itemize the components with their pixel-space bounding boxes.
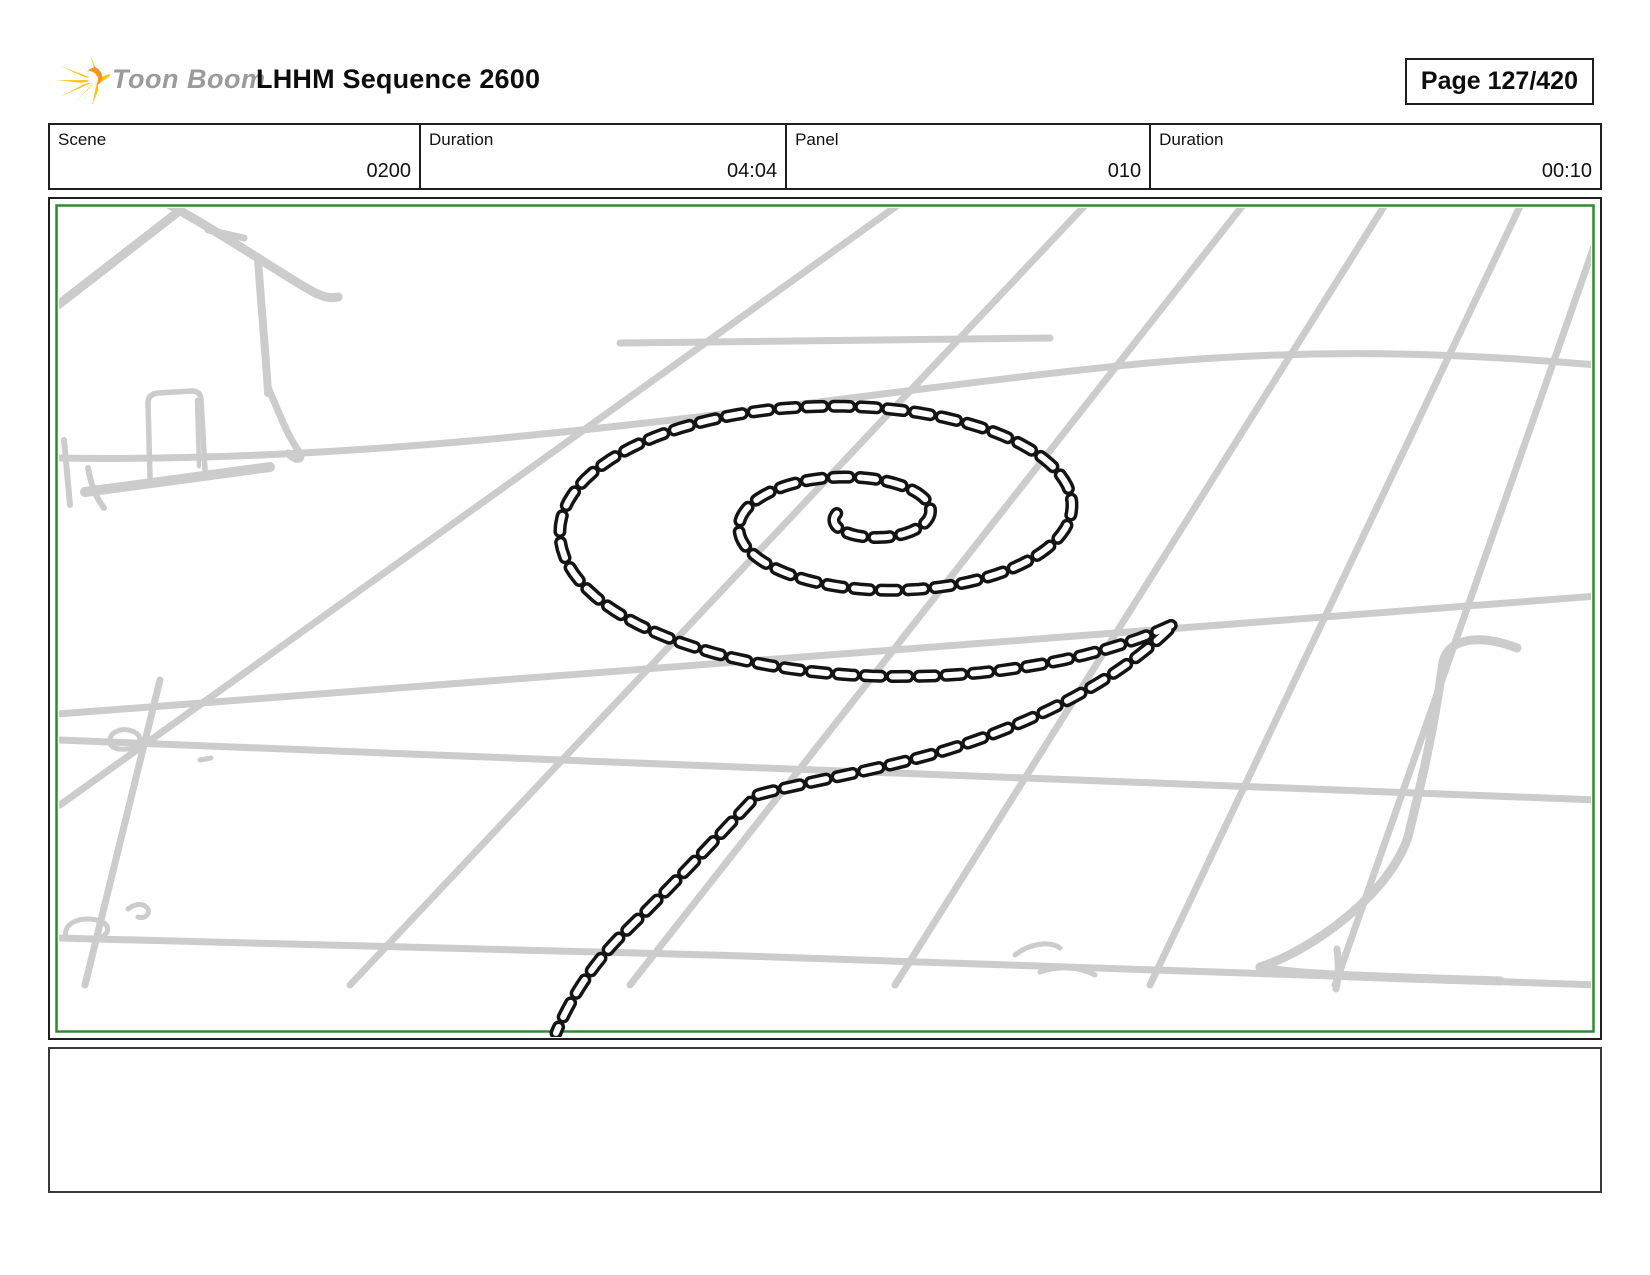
field-value: 04:04 [727,160,777,183]
panel-duration-cell: Duration 00:10 [1151,125,1600,188]
storyboard-drawing-panel [48,197,1602,1040]
scene-cell: Scene 0200 [50,125,421,188]
caption-box [48,1047,1602,1193]
field-label: Duration [1159,130,1223,150]
rope-stroke-layer [556,406,1174,1033]
pole-sketch [1260,640,1517,989]
page-indicator-label: Page 127/420 [1421,67,1578,96]
floor-grid-lines [58,200,1598,985]
toon-boom-logo-icon [56,52,110,110]
sequence-title: LHHM Sequence 2600 [256,64,540,95]
background-sketch [58,200,1598,989]
field-label: Panel [795,130,838,150]
field-value: 010 [1108,160,1141,183]
field-label: Duration [429,130,493,150]
panel-info-table: Scene 0200 Duration 04:04 Panel 010 Dura… [48,123,1602,190]
field-value: 0200 [367,160,412,183]
ground-marks [65,730,1095,975]
scene-duration-cell: Duration 04:04 [421,125,787,188]
field-label: Scene [58,130,106,150]
panel-number-cell: Panel 010 [787,125,1151,188]
storyboard-sketch [48,197,1602,1040]
storyboard-page: Toon Boom LHHM Sequence 2600 Page 127/42… [0,0,1650,1275]
rope-stroke-layer [556,406,1174,1033]
page-header: Toon Boom LHHM Sequence 2600 Page 127/42… [48,50,1598,112]
logo-wordmark: Toon Boom [112,64,265,95]
field-value: 00:10 [1542,160,1592,183]
rope-stroke-layer [556,406,1174,1033]
page-indicator: Page 127/420 [1405,58,1594,105]
coiled-rope-drawing [556,406,1174,1033]
house-sketch [58,205,338,508]
